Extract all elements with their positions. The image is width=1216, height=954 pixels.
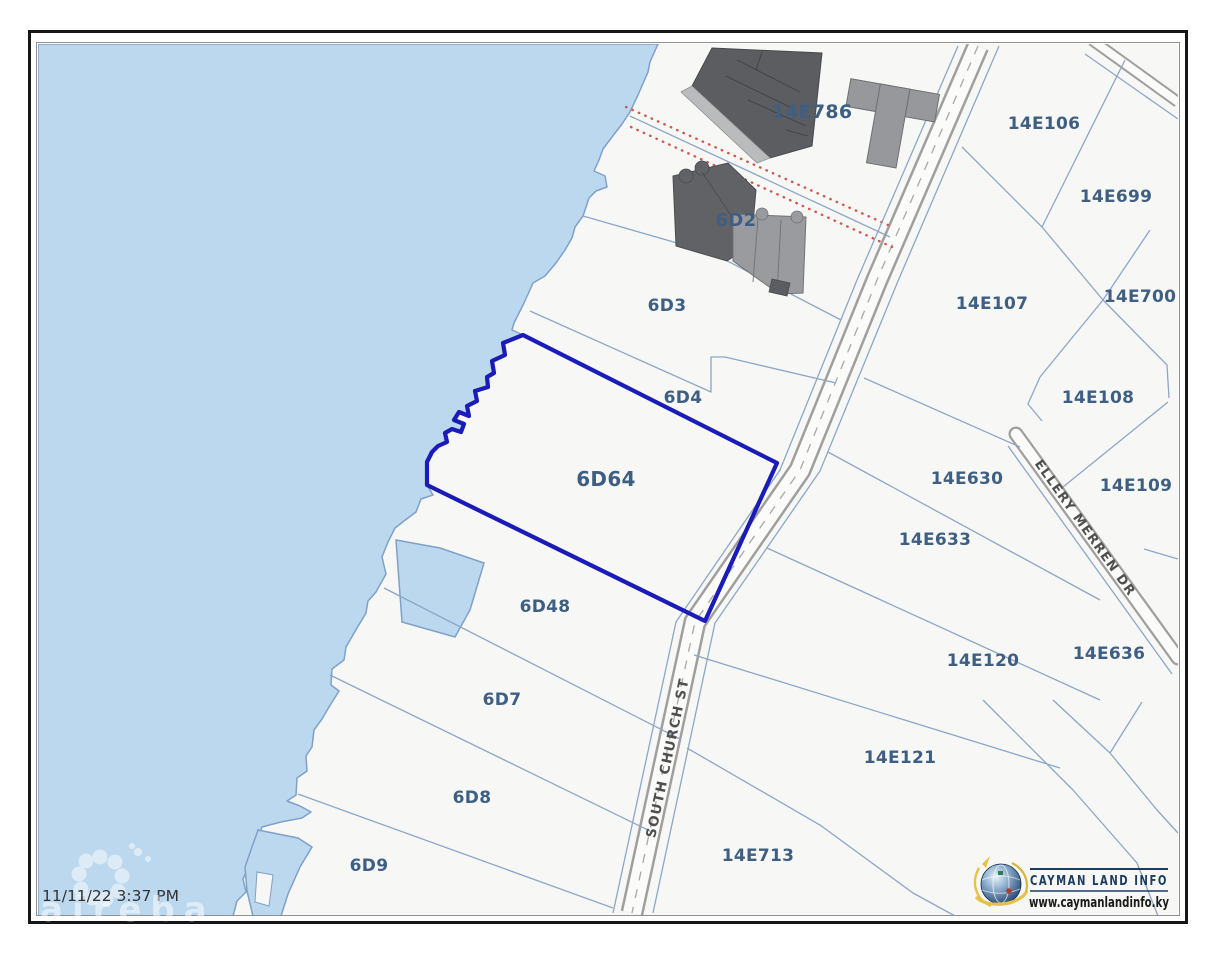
parcel-label-6D4: 6D4 [664, 388, 703, 408]
parcel-label-6D48: 6D48 [520, 597, 571, 617]
parcel-label-14E630: 14E630 [931, 469, 1004, 489]
globe-icon [981, 864, 1021, 904]
parcel-label-14E713: 14E713 [722, 846, 795, 866]
logo-text: CAYMAN LAND INFO [1030, 874, 1168, 889]
parcel-label-6D64: 6D64 [576, 467, 636, 491]
parcel-label-14E108: 14E108 [1062, 388, 1135, 408]
parcel-label-14E636: 14E636 [1073, 644, 1146, 664]
parcel-label-14E120: 14E120 [947, 651, 1020, 671]
parcel-label-14E786: 14E786 [772, 101, 853, 123]
parcel-label-14E633: 14E633 [899, 530, 972, 550]
watermark-text: aireba [40, 890, 216, 930]
parcel-map[interactable]: 14E786 6D2 6D3 6D4 6D64 6D48 6D7 6D8 6D9… [0, 0, 1216, 954]
parcel-label-14E107: 14E107 [956, 294, 1029, 314]
parcel-label-14E121: 14E121 [864, 748, 937, 768]
parcel-label-6D3: 6D3 [648, 296, 687, 316]
logo-website[interactable]: www.caymanlandinfo.ky [1029, 895, 1169, 911]
parcel-label-6D2: 6D2 [716, 210, 757, 231]
parcel-label-14E699: 14E699 [1080, 187, 1153, 207]
parcel-label-14E700: 14E700 [1104, 287, 1177, 307]
parcel-label-14E106: 14E106 [1008, 114, 1081, 134]
globe-green-dot [998, 871, 1003, 875]
parcel-label-6D9: 6D9 [350, 856, 389, 876]
parcel-label-14E109: 14E109 [1100, 476, 1173, 496]
map-viewer: 14E786 6D2 6D3 6D4 6D64 6D48 6D7 6D8 6D9… [0, 0, 1216, 954]
parcel-label-6D7: 6D7 [483, 690, 522, 710]
parcel-label-6D8: 6D8 [453, 788, 492, 808]
globe-red-dot [1006, 888, 1012, 894]
